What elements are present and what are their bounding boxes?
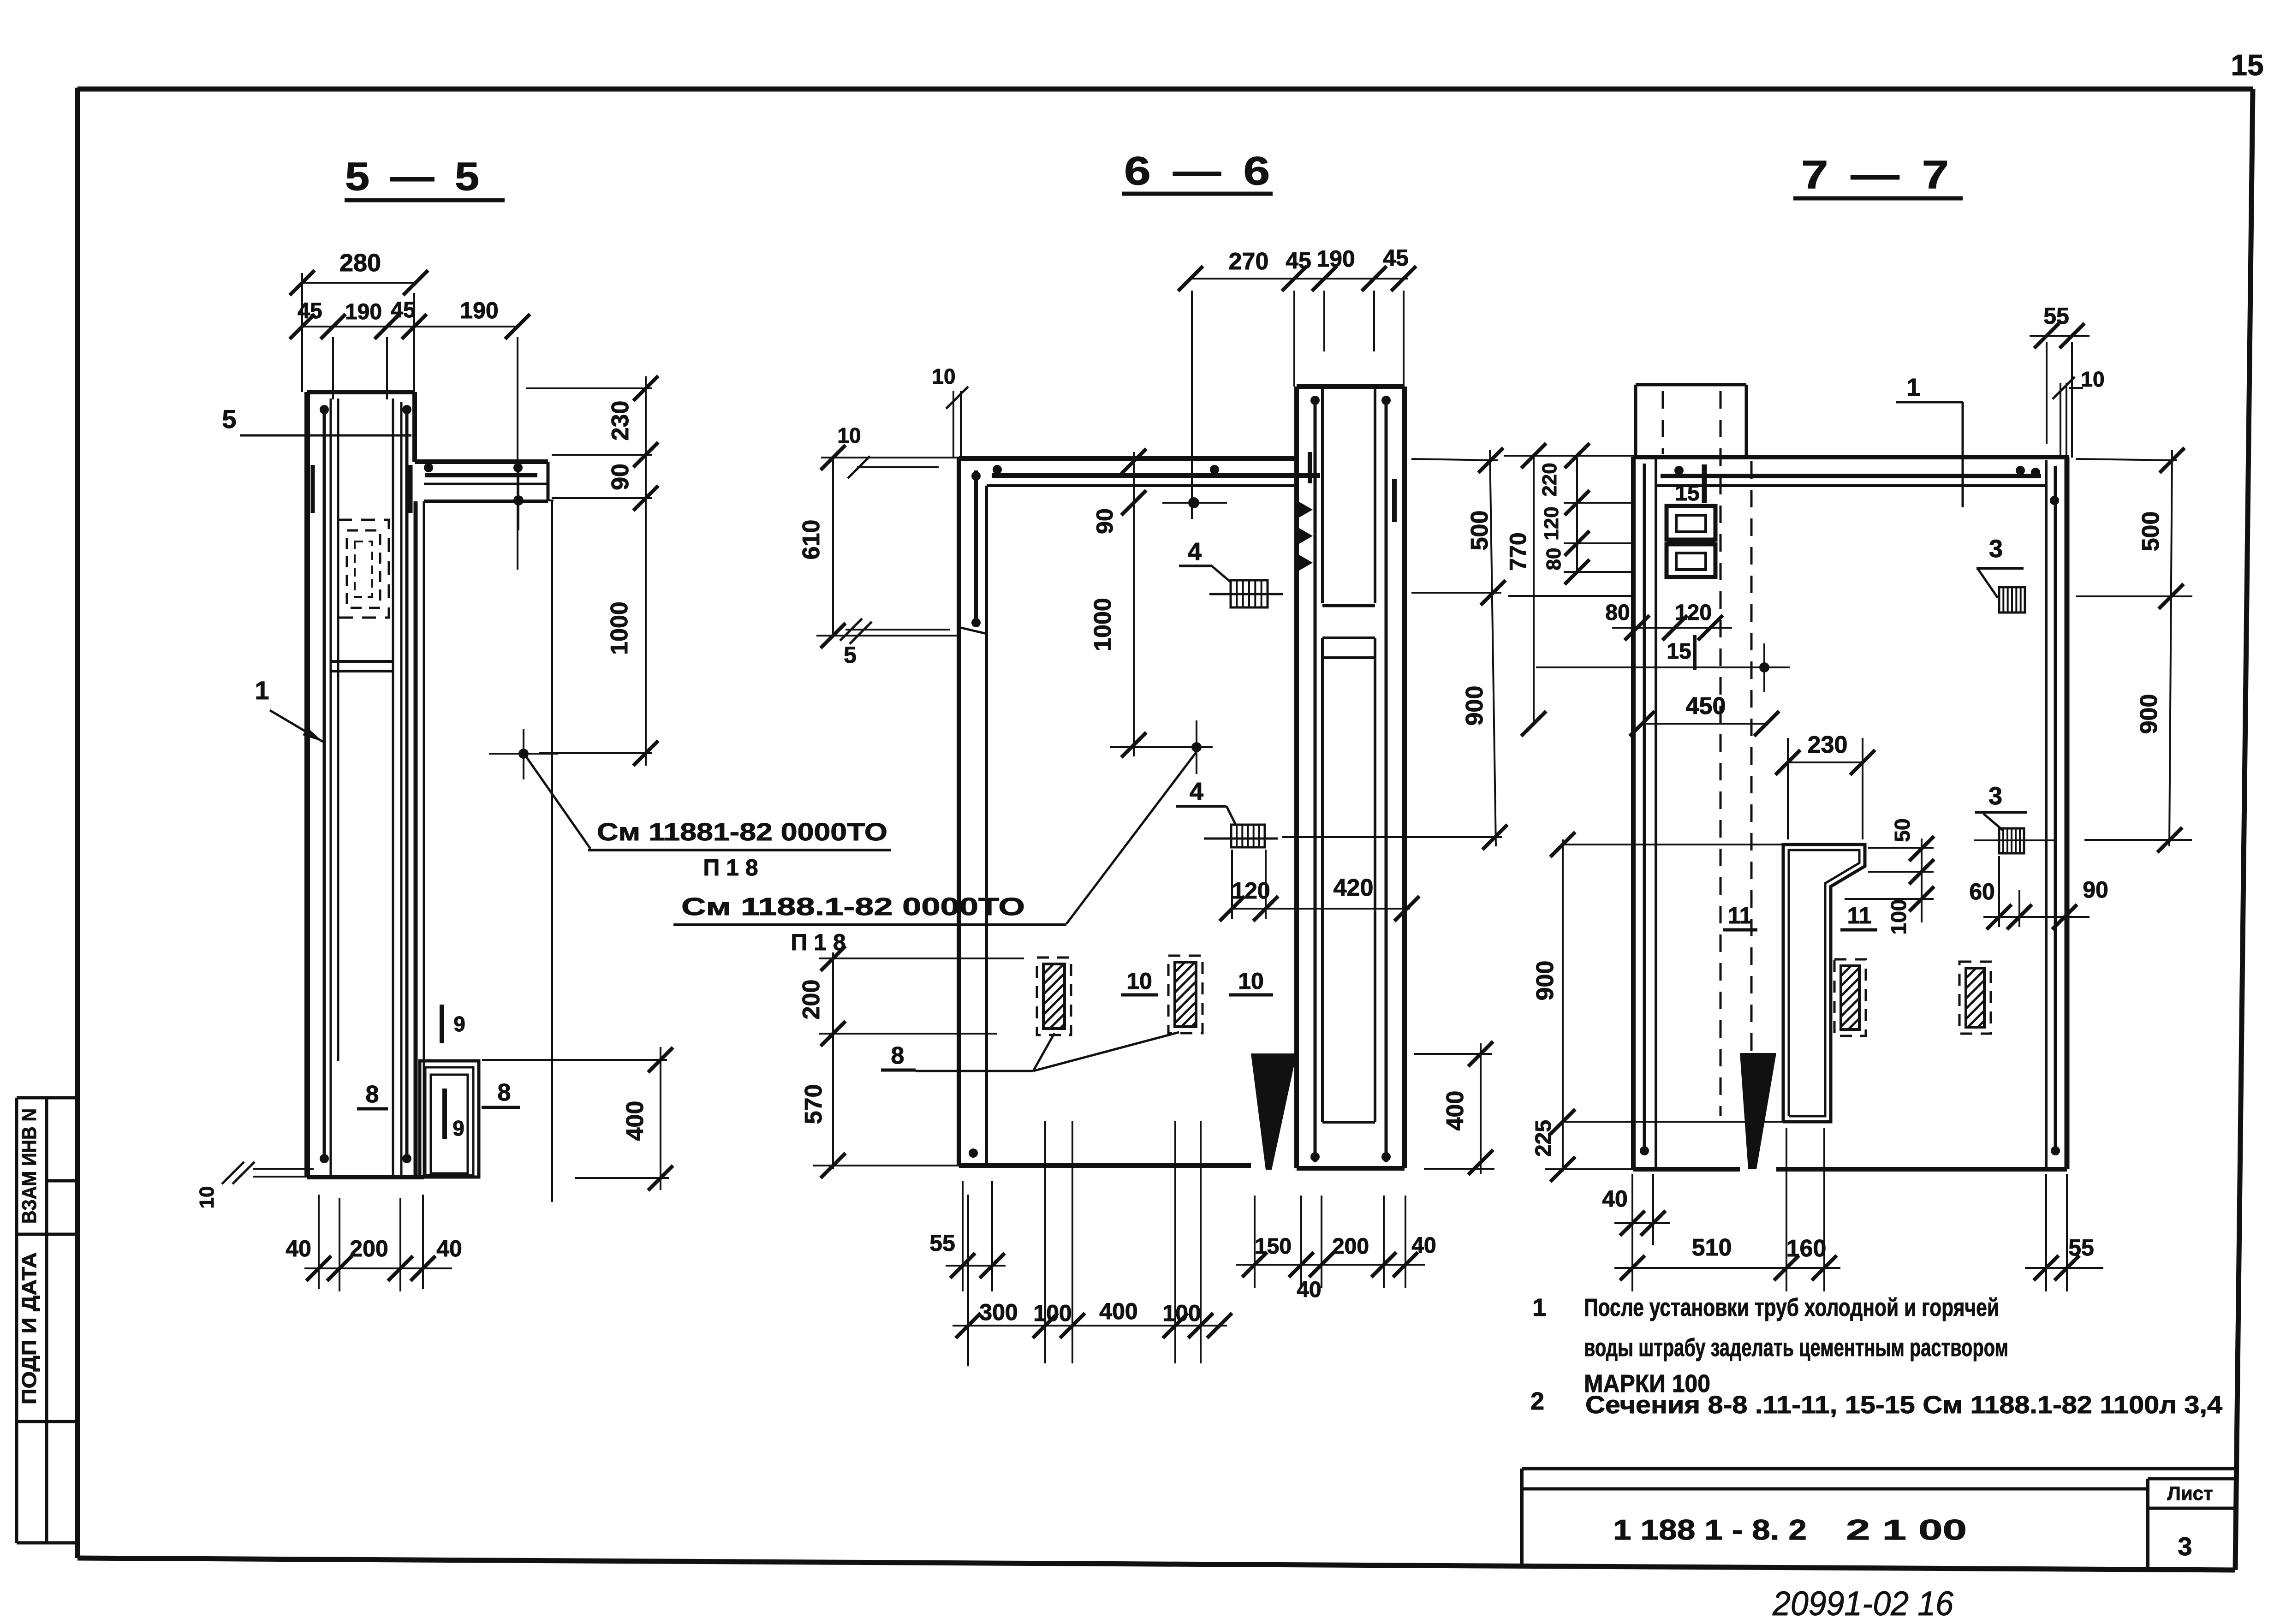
svg-text:770: 770: [1505, 532, 1531, 571]
svg-text:150: 150: [1255, 1234, 1292, 1259]
svg-text:1000: 1000: [606, 601, 633, 655]
svg-text:160: 160: [1786, 1235, 1827, 1262]
svg-text:40: 40: [286, 1236, 311, 1261]
svg-text:9: 9: [453, 1012, 465, 1036]
svg-text:900: 900: [2136, 694, 2162, 734]
svg-text:8: 8: [498, 1079, 511, 1106]
svg-text:7 — 7: 7 — 7: [1801, 153, 1953, 197]
svg-text:ПОДП И ДАТА: ПОДП И ДАТА: [18, 1252, 41, 1404]
svg-text:300: 300: [979, 1299, 1018, 1325]
svg-text:510: 510: [1692, 1234, 1732, 1261]
svg-text:40: 40: [436, 1236, 462, 1261]
svg-text:100: 100: [1887, 899, 1911, 935]
svg-text:9: 9: [452, 1116, 464, 1140]
svg-text:270: 270: [1229, 248, 1269, 275]
svg-text:45: 45: [391, 298, 415, 322]
svg-text:120: 120: [1540, 506, 1563, 540]
svg-text:190: 190: [460, 297, 498, 323]
svg-text:10: 10: [1238, 968, 1264, 994]
svg-text:80: 80: [1542, 548, 1565, 571]
svg-text:90: 90: [2083, 877, 2108, 903]
svg-text:10: 10: [932, 364, 955, 388]
svg-text:100: 100: [1162, 1300, 1201, 1326]
svg-text:11: 11: [1728, 903, 1752, 928]
svg-text:900: 900: [1461, 686, 1488, 726]
svg-text:4: 4: [1188, 538, 1202, 565]
svg-text:10: 10: [837, 423, 861, 447]
svg-text:5: 5: [222, 405, 236, 434]
svg-text:190: 190: [345, 300, 382, 324]
svg-text:После установки труб холодной: После установки труб холодной и горячей: [1584, 1294, 1999, 1321]
svg-text:15: 15: [1675, 481, 1699, 506]
svg-text:5 — 5: 5 — 5: [345, 155, 483, 199]
svg-text:3: 3: [1989, 535, 2003, 563]
svg-text:50: 50: [1890, 818, 1914, 842]
svg-text:15: 15: [2231, 48, 2263, 82]
svg-text:1: 1: [1906, 374, 1920, 401]
svg-text:См 1188.1-82 0000ТО: См 1188.1-82 0000ТО: [681, 893, 1025, 921]
svg-text:1: 1: [255, 676, 269, 705]
svg-text:40: 40: [1411, 1233, 1436, 1258]
svg-text:60: 60: [1969, 879, 1995, 904]
svg-text:55: 55: [929, 1230, 955, 1256]
svg-text:200: 200: [350, 1236, 388, 1261]
svg-text:воды штрабу заделать цементным: воды штрабу заделать цементным раствором: [1584, 1334, 2008, 1362]
svg-text:190: 190: [1316, 246, 1355, 272]
svg-text:Сечения 8-8 .11-11, 15-15 См 1: Сечения 8-8 .11-11, 15-15 См 1188.1-82 1…: [1585, 1391, 2222, 1419]
svg-text:230: 230: [1808, 732, 1848, 758]
svg-text:225: 225: [1531, 1120, 1556, 1157]
svg-text:45: 45: [1286, 248, 1311, 274]
svg-text:40: 40: [1602, 1186, 1628, 1212]
svg-text:450: 450: [1686, 693, 1726, 720]
svg-text:55: 55: [2043, 303, 2069, 329]
svg-text:45: 45: [1383, 245, 1409, 271]
svg-text:ВЗАМ ИНВ N: ВЗАМ ИНВ N: [18, 1108, 41, 1224]
svg-text:100: 100: [1033, 1300, 1072, 1326]
svg-text:10: 10: [1126, 968, 1152, 994]
svg-text:2 1 00: 2 1 00: [1846, 1514, 1967, 1546]
svg-text:8: 8: [891, 1042, 905, 1069]
svg-text:1000: 1000: [1089, 598, 1116, 651]
svg-text:11: 11: [1847, 903, 1872, 928]
svg-text:55: 55: [2068, 1235, 2094, 1261]
svg-text:1 188 1 - 8. 2: 1 188 1 - 8. 2: [1613, 1514, 1807, 1546]
svg-text:90: 90: [1092, 508, 1118, 534]
svg-text:1: 1: [1532, 1294, 1546, 1321]
svg-text:6 — 6: 6 — 6: [1124, 149, 1274, 193]
svg-text:3: 3: [2178, 1532, 2192, 1561]
svg-text:500: 500: [1466, 511, 1493, 551]
svg-text:2: 2: [1530, 1387, 1544, 1415]
svg-text:400: 400: [1099, 1298, 1137, 1324]
svg-text:900: 900: [1532, 961, 1559, 1001]
svg-text:10: 10: [2081, 367, 2104, 391]
svg-text:80: 80: [1605, 601, 1630, 625]
svg-text:220: 220: [1538, 463, 1561, 496]
svg-text:Лист: Лист: [2167, 1482, 2213, 1504]
svg-text:420: 420: [1334, 874, 1374, 901]
svg-text:10: 10: [196, 1186, 218, 1209]
svg-text:См 11881-82 0000ТО: См 11881-82 0000ТО: [597, 818, 887, 846]
svg-text:230: 230: [607, 401, 634, 441]
svg-text:400: 400: [1442, 1091, 1469, 1131]
svg-text:5: 5: [844, 642, 857, 668]
svg-text:П 1 8: П 1 8: [703, 855, 758, 880]
svg-text:200: 200: [1332, 1234, 1369, 1259]
svg-text:120: 120: [1232, 878, 1270, 904]
svg-text:610: 610: [798, 520, 825, 560]
svg-text:15: 15: [1667, 639, 1691, 664]
svg-text:П 1 8: П 1 8: [791, 929, 845, 955]
svg-text:500: 500: [2137, 512, 2164, 552]
svg-text:20991-02 16: 20991-02 16: [1772, 1584, 1954, 1623]
svg-text:400: 400: [622, 1101, 649, 1141]
svg-text:4: 4: [1190, 778, 1203, 805]
svg-text:120: 120: [1675, 601, 1712, 625]
svg-text:200: 200: [798, 980, 825, 1020]
svg-text:570: 570: [800, 1084, 827, 1124]
svg-text:8: 8: [366, 1081, 379, 1108]
svg-text:3: 3: [1988, 782, 2002, 810]
svg-text:90: 90: [607, 464, 634, 490]
svg-text:280: 280: [339, 249, 381, 277]
